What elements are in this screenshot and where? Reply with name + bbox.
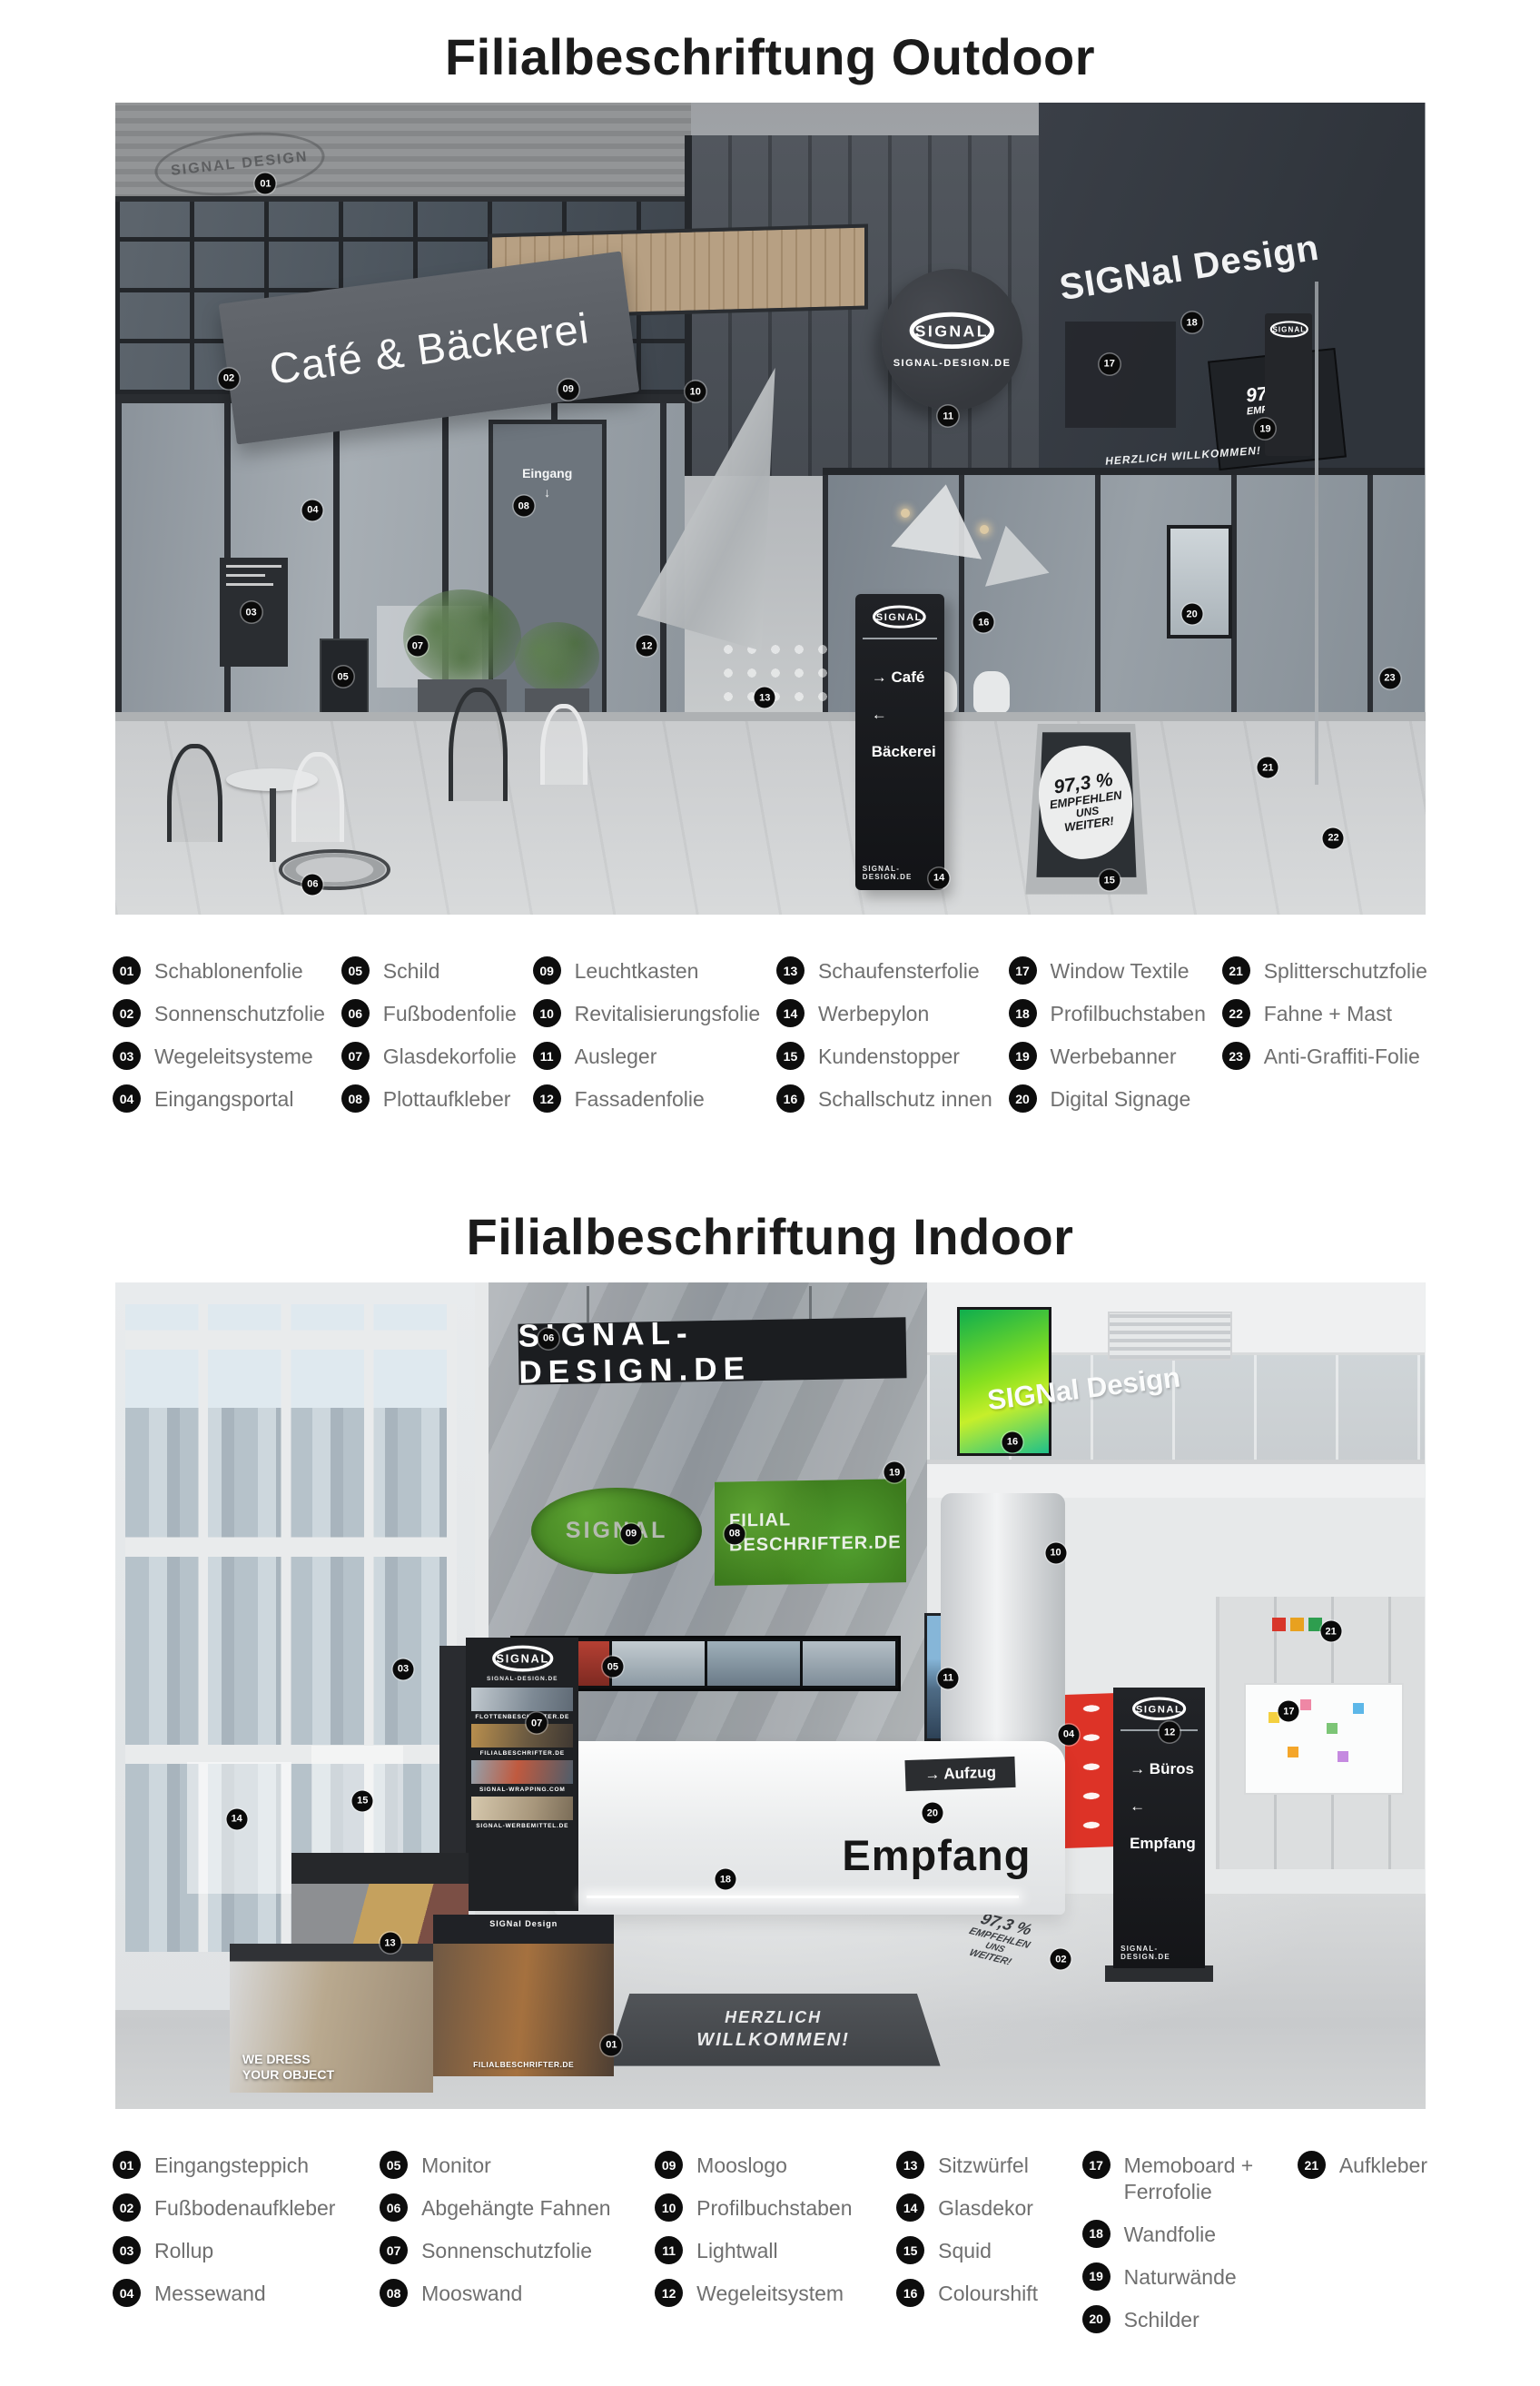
- legend-label: Anti-Graffiti-Folie: [1264, 1042, 1420, 1070]
- image-marker: 14: [226, 1808, 247, 1829]
- legend-item: 12Fassadenfolie: [533, 1084, 761, 1113]
- image-marker: 09: [558, 379, 578, 400]
- image-marker: 11: [938, 1668, 959, 1688]
- legend-label: Schablonenfolie: [154, 956, 303, 985]
- legend-label: Schild: [383, 956, 440, 985]
- legend-item: 17Memoboard + Ferrofolie: [1082, 2151, 1254, 2205]
- image-marker: 08: [513, 496, 534, 517]
- legend-item: 14Glasdekor: [896, 2193, 1038, 2222]
- legend-column: 17Memoboard + Ferrofolie18Wandfolie19Nat…: [1082, 2151, 1254, 2348]
- legend-label: Mooswand: [421, 2279, 522, 2307]
- legend-number-badge: 11: [655, 2236, 683, 2264]
- image-marker: 21: [1320, 1621, 1341, 1642]
- legend-number-badge: 13: [896, 2151, 924, 2179]
- legend-label: Werbepylon: [818, 999, 929, 1027]
- image-marker: 05: [602, 1657, 623, 1678]
- image-marker: 10: [685, 381, 706, 402]
- outdoor-legend: 01Schablonenfolie02Sonnenschutzfolie03We…: [109, 956, 1431, 1127]
- image-marker: 02: [1051, 1949, 1071, 1970]
- legend-number-badge: 21: [1222, 956, 1250, 985]
- legend-item: 03Rollup: [113, 2236, 335, 2264]
- legend-number-badge: 14: [776, 999, 805, 1027]
- indoor-markers: 0102030405060708091011121314151617181920…: [115, 1282, 1426, 2109]
- legend-column: 21Splitterschutzfolie22Fahne + Mast23Ant…: [1222, 956, 1427, 1127]
- legend-number-badge: 05: [380, 2151, 408, 2179]
- legend-label: Wegeleitsysteme: [154, 1042, 313, 1070]
- image-marker: 20: [1181, 604, 1202, 625]
- image-marker: 05: [332, 667, 353, 688]
- legend-number-badge: 23: [1222, 1042, 1250, 1070]
- image-marker: 17: [1099, 353, 1120, 374]
- image-marker: 20: [922, 1803, 943, 1824]
- legend-label: Fußbodenfolie: [383, 999, 517, 1027]
- legend-number-badge: 08: [341, 1084, 370, 1113]
- image-marker: 11: [938, 406, 959, 427]
- legend-label: Werbebanner: [1051, 1042, 1177, 1070]
- legend-number-badge: 13: [776, 956, 805, 985]
- legend-item: 07Glasdekorfolie: [341, 1042, 517, 1070]
- legend-label: Lightwall: [696, 2236, 778, 2264]
- image-marker: 18: [1181, 312, 1202, 333]
- legend-item: 05Schild: [341, 956, 517, 985]
- legend-item: 22Fahne + Mast: [1222, 999, 1427, 1027]
- legend-number-badge: 21: [1298, 2151, 1326, 2179]
- legend-label: Profilbuchstaben: [696, 2193, 852, 2222]
- legend-number-badge: 07: [380, 2236, 408, 2264]
- image-marker: 07: [527, 1713, 548, 1734]
- outdoor-photo: SIGNAL DESIGN SIGNal Design 97,3 % EMPFE…: [115, 103, 1426, 915]
- legend-item: 11Ausleger: [533, 1042, 761, 1070]
- legend-number-badge: 15: [896, 2236, 924, 2264]
- legend-label: Schallschutz innen: [818, 1084, 992, 1113]
- legend-number-badge: 18: [1009, 999, 1037, 1027]
- legend-label: Abgehängte Fahnen: [421, 2193, 610, 2222]
- image-marker: 12: [1160, 1722, 1180, 1743]
- legend-number-badge: 19: [1082, 2262, 1111, 2291]
- image-marker: 12: [637, 636, 657, 657]
- legend-item: 01Eingangsteppich: [113, 2151, 335, 2179]
- legend-label: Aufkleber: [1339, 2151, 1427, 2179]
- legend-label: Eingangsportal: [154, 1084, 293, 1113]
- legend-number-badge: 09: [655, 2151, 683, 2179]
- legend-number-badge: 01: [113, 956, 141, 985]
- image-marker: 03: [392, 1658, 413, 1679]
- legend-number-badge: 11: [533, 1042, 561, 1070]
- legend-number-badge: 04: [113, 1084, 141, 1113]
- legend-label: Fußbodenaufkleber: [154, 2193, 335, 2222]
- image-marker: 06: [538, 1328, 559, 1349]
- legend-label: Wegeleitsystem: [696, 2279, 844, 2307]
- image-marker: 10: [1045, 1542, 1066, 1563]
- legend-label: Digital Signage: [1051, 1084, 1191, 1113]
- legend-number-badge: 18: [1082, 2220, 1111, 2248]
- legend-label: Glasdekor: [938, 2193, 1033, 2222]
- image-marker: 19: [884, 1462, 905, 1483]
- image-marker: 01: [255, 173, 276, 194]
- legend-item: 05Monitor: [380, 2151, 610, 2179]
- image-marker: 14: [929, 867, 950, 888]
- legend-column: 09Leuchtkasten10Revitalisierungsfolie11A…: [533, 956, 761, 1127]
- legend-item: 10Revitalisierungsfolie: [533, 999, 761, 1027]
- legend-number-badge: 22: [1222, 999, 1250, 1027]
- legend-label: Sonnenschutzfolie: [154, 999, 325, 1027]
- legend-label: Sonnenschutzfolie: [421, 2236, 592, 2264]
- legend-label: Eingangsteppich: [154, 2151, 309, 2179]
- legend-column: 05Schild06Fußbodenfolie07Glasdekorfolie0…: [341, 956, 517, 1127]
- legend-number-badge: 03: [113, 2236, 141, 2264]
- image-marker: 08: [725, 1523, 745, 1544]
- legend-label: Glasdekorfolie: [383, 1042, 517, 1070]
- legend-item: 15Squid: [896, 2236, 1038, 2264]
- image-marker: 22: [1323, 827, 1344, 848]
- image-marker: 13: [755, 688, 775, 708]
- bottom-padding: [0, 2348, 1540, 2386]
- legend-label: Memoboard + Ferrofolie: [1124, 2151, 1254, 2205]
- legend-item: 21Aufkleber: [1298, 2151, 1427, 2179]
- legend-number-badge: 16: [776, 1084, 805, 1113]
- image-marker: 09: [621, 1523, 642, 1544]
- image-marker: 17: [1278, 1701, 1299, 1722]
- image-marker: 23: [1379, 668, 1400, 688]
- legend-item: 02Fußbodenaufkleber: [113, 2193, 335, 2222]
- legend-label: Schilder: [1124, 2305, 1199, 2333]
- legend-column: 05Monitor06Abgehängte Fahnen07Sonnenschu…: [380, 2151, 610, 2348]
- legend-label: Window Textile: [1051, 956, 1190, 985]
- legend-item: 15Kundenstopper: [776, 1042, 992, 1070]
- image-marker: 01: [601, 2035, 622, 2055]
- legend-number-badge: 09: [533, 956, 561, 985]
- legend-label: Monitor: [421, 2151, 491, 2179]
- legend-item: 03Wegeleitsysteme: [113, 1042, 325, 1070]
- legend-number-badge: 07: [341, 1042, 370, 1070]
- outdoor-section: Filialbeschriftung Outdoor SIGNAL DESIGN…: [0, 27, 1540, 1127]
- legend-label: Schaufensterfolie: [818, 956, 980, 985]
- legend-item: 17Window Textile: [1009, 956, 1206, 985]
- image-marker: 02: [219, 368, 240, 389]
- legend-number-badge: 19: [1009, 1042, 1037, 1070]
- legend-item: 16Colourshift: [896, 2279, 1038, 2307]
- legend-label: Plottaufkleber: [383, 1084, 511, 1113]
- legend-item: 08Mooswand: [380, 2279, 610, 2307]
- legend-number-badge: 06: [380, 2193, 408, 2222]
- legend-item: 18Profilbuchstaben: [1009, 999, 1206, 1027]
- image-marker: 16: [973, 612, 994, 633]
- legend-number-badge: 20: [1082, 2305, 1111, 2333]
- legend-item: 11Lightwall: [655, 2236, 852, 2264]
- image-marker: 15: [1099, 870, 1120, 891]
- image-marker: 21: [1258, 757, 1278, 778]
- legend-number-badge: 08: [380, 2279, 408, 2307]
- outdoor-title: Filialbeschriftung Outdoor: [0, 27, 1540, 86]
- legend-label: Kundenstopper: [818, 1042, 960, 1070]
- legend-label: Revitalisierungsfolie: [575, 999, 761, 1027]
- legend-item: 06Abgehängte Fahnen: [380, 2193, 610, 2222]
- legend-column: 21Aufkleber: [1298, 2151, 1427, 2348]
- legend-label: Fassadenfolie: [575, 1084, 705, 1113]
- indoor-section: Filialbeschriftung Indoor SIGNal Design …: [0, 1207, 1540, 2386]
- image-marker: 15: [352, 1790, 373, 1811]
- legend-label: Mooslogo: [696, 2151, 787, 2179]
- legend-item: 21Splitterschutzfolie: [1222, 956, 1427, 985]
- legend-item: 07Sonnenschutzfolie: [380, 2236, 610, 2264]
- legend-label: Profilbuchstaben: [1051, 999, 1206, 1027]
- legend-item: 06Fußbodenfolie: [341, 999, 517, 1027]
- legend-number-badge: 02: [113, 2193, 141, 2222]
- legend-number-badge: 02: [113, 999, 141, 1027]
- legend-label: Colourshift: [938, 2279, 1038, 2307]
- legend-column: 09Mooslogo10Profilbuchstaben11Lightwall1…: [655, 2151, 852, 2348]
- image-marker: 18: [715, 1869, 735, 1890]
- legend-item: 13Sitzwürfel: [896, 2151, 1038, 2179]
- legend-column: 01Eingangsteppich02Fußbodenaufkleber03Ro…: [113, 2151, 335, 2348]
- legend-label: Leuchtkasten: [575, 956, 699, 985]
- legend-column: 17Window Textile18Profilbuchstaben19Werb…: [1009, 956, 1206, 1127]
- legend-item: 13Schaufensterfolie: [776, 956, 992, 985]
- legend-item: 08Plottaufkleber: [341, 1084, 517, 1113]
- image-marker: 19: [1255, 419, 1276, 440]
- image-marker: 06: [302, 874, 323, 895]
- legend-column: 13Schaufensterfolie14Werbepylon15Kundens…: [776, 956, 992, 1127]
- legend-label: Naturwände: [1124, 2262, 1237, 2291]
- image-marker: 04: [302, 500, 323, 520]
- legend-number-badge: 17: [1082, 2151, 1111, 2179]
- image-marker: 04: [1059, 1724, 1080, 1745]
- legend-number-badge: 15: [776, 1042, 805, 1070]
- legend-item: 01Schablonenfolie: [113, 956, 325, 985]
- image-marker: 03: [241, 602, 262, 623]
- indoor-legend: 01Eingangsteppich02Fußbodenaufkleber03Ro…: [109, 2151, 1431, 2348]
- legend-number-badge: 14: [896, 2193, 924, 2222]
- outdoor-markers: 0102030405060708091011121314151617181920…: [115, 103, 1426, 915]
- legend-number-badge: 10: [655, 2193, 683, 2222]
- legend-item: 04Messewand: [113, 2279, 335, 2307]
- legend-number-badge: 05: [341, 956, 370, 985]
- legend-item: 20Schilder: [1082, 2305, 1254, 2333]
- legend-item: 10Profilbuchstaben: [655, 2193, 852, 2222]
- legend-item: 09Leuchtkasten: [533, 956, 761, 985]
- legend-label: Splitterschutzfolie: [1264, 956, 1427, 985]
- legend-label: Messewand: [154, 2279, 266, 2307]
- legend-item: 20Digital Signage: [1009, 1084, 1206, 1113]
- image-marker: 16: [1002, 1431, 1022, 1452]
- legend-column: 01Schablonenfolie02Sonnenschutzfolie03We…: [113, 956, 325, 1127]
- indoor-title: Filialbeschriftung Indoor: [0, 1207, 1540, 1266]
- legend-item: 04Eingangsportal: [113, 1084, 325, 1113]
- legend-column: 13Sitzwürfel14Glasdekor15Squid16Coloursh…: [896, 2151, 1038, 2348]
- legend-label: Sitzwürfel: [938, 2151, 1029, 2179]
- legend-item: 12Wegeleitsystem: [655, 2279, 852, 2307]
- legend-item: 14Werbepylon: [776, 999, 992, 1027]
- legend-item: 23Anti-Graffiti-Folie: [1222, 1042, 1427, 1070]
- legend-number-badge: 10: [533, 999, 561, 1027]
- legend-number-badge: 04: [113, 2279, 141, 2307]
- legend-number-badge: 12: [655, 2279, 683, 2307]
- legend-number-badge: 16: [896, 2279, 924, 2307]
- legend-number-badge: 20: [1009, 1084, 1037, 1113]
- legend-label: Rollup: [154, 2236, 213, 2264]
- legend-item: 16Schallschutz innen: [776, 1084, 992, 1113]
- legend-label: Ausleger: [575, 1042, 657, 1070]
- legend-label: Fahne + Mast: [1264, 999, 1392, 1027]
- legend-item: 18Wandfolie: [1082, 2220, 1254, 2248]
- legend-item: 09Mooslogo: [655, 2151, 852, 2179]
- legend-label: Wandfolie: [1124, 2220, 1216, 2248]
- image-marker: 07: [407, 636, 428, 657]
- image-marker: 13: [380, 1933, 400, 1954]
- legend-item: 19Werbebanner: [1009, 1042, 1206, 1070]
- legend-number-badge: 12: [533, 1084, 561, 1113]
- legend-item: 02Sonnenschutzfolie: [113, 999, 325, 1027]
- legend-number-badge: 01: [113, 2151, 141, 2179]
- legend-label: Squid: [938, 2236, 992, 2264]
- legend-number-badge: 17: [1009, 956, 1037, 985]
- legend-number-badge: 03: [113, 1042, 141, 1070]
- indoor-photo: SIGNal Design SIGNAL-DESIGN.DE SIGNAL FI…: [115, 1282, 1426, 2109]
- legend-item: 19Naturwände: [1082, 2262, 1254, 2291]
- legend-number-badge: 06: [341, 999, 370, 1027]
